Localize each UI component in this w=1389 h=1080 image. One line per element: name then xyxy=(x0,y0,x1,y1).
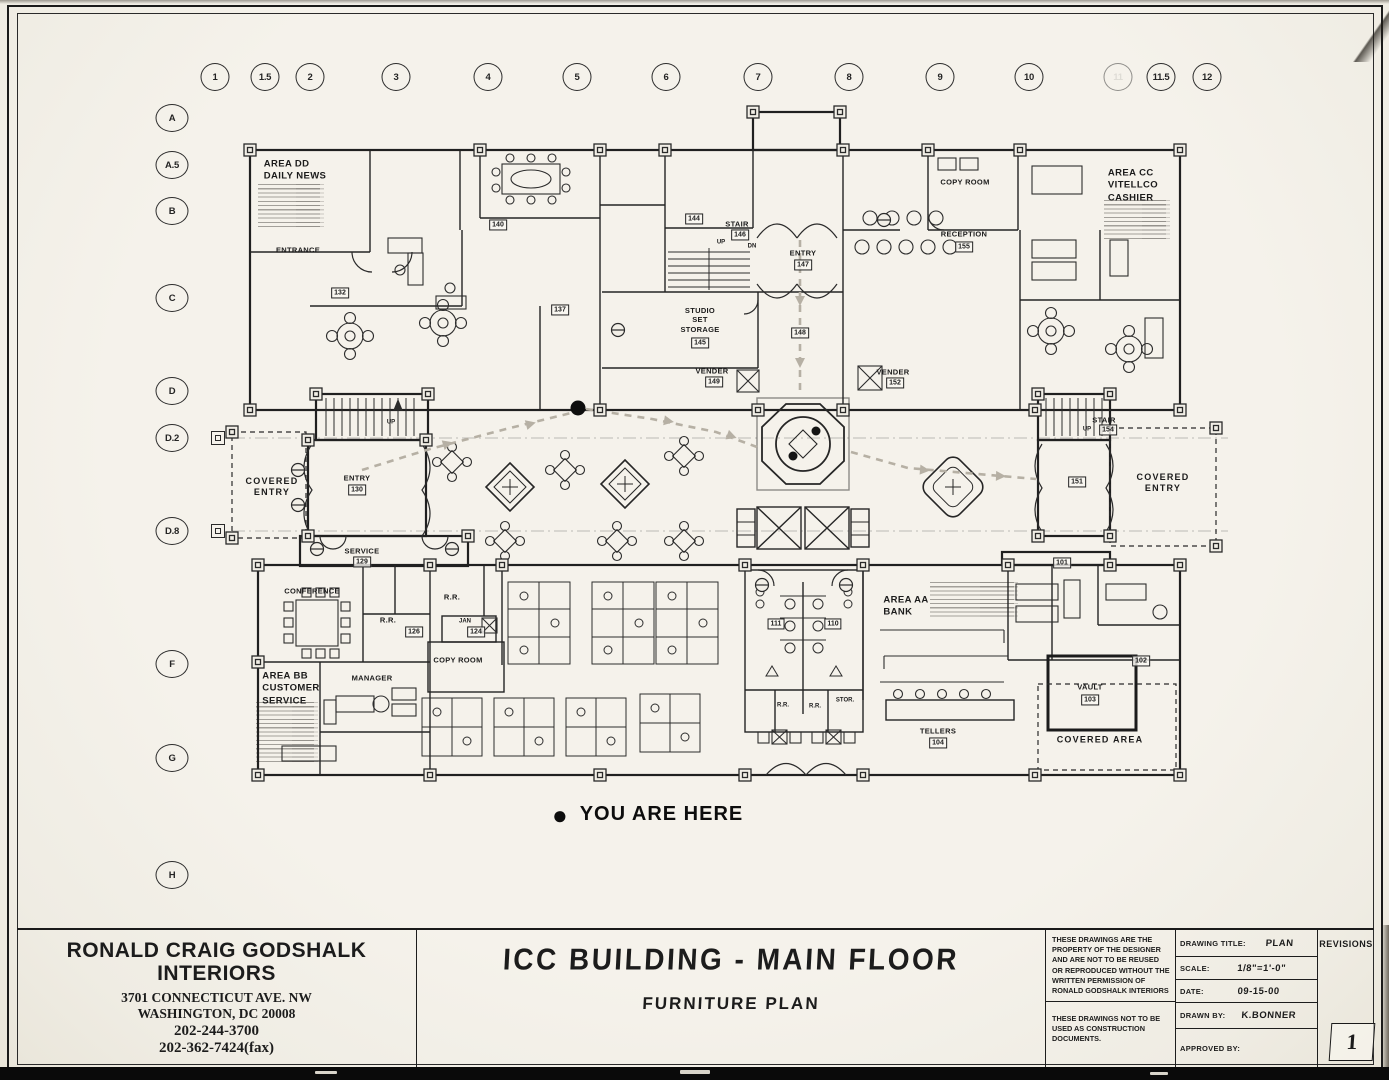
you-are-here-dot: ● xyxy=(552,804,568,826)
plan-label: AREA CC VITELLCO CASHIER xyxy=(1108,167,1158,204)
plan-label: JAN xyxy=(459,618,471,626)
plan-label: 129 xyxy=(353,556,371,567)
sheet-number-box: 1 xyxy=(1329,1023,1376,1061)
drawing-title-value: PLAN xyxy=(1245,938,1313,949)
plan-label: 111 xyxy=(768,618,785,629)
plan-label: 146 xyxy=(731,229,749,240)
plan-label: 155 xyxy=(955,241,973,252)
plan-label: 137 xyxy=(551,304,569,315)
scan-bar xyxy=(0,1067,1389,1080)
project-title-block: ICC BUILDING - MAIN FLOOR FURNITURE PLAN xyxy=(417,930,1046,1067)
scale-label: SCALE: xyxy=(1180,964,1210,973)
plan-label: 126 xyxy=(405,626,423,637)
ownership-note: These drawings are the property of the d… xyxy=(1046,930,1176,1002)
plan-label: VENDER xyxy=(695,366,728,375)
scan-smudge-corner xyxy=(1353,0,1389,62)
firm-name-line2: INTERIORS xyxy=(17,962,416,985)
project-title: ICC BUILDING - MAIN FLOOR xyxy=(416,943,1046,978)
plan-label: COVERED ENTRY xyxy=(1137,472,1190,495)
plan-label: RECEPTION xyxy=(941,229,987,238)
plan-label: VENDER xyxy=(876,367,909,376)
approved-by-label: APPROVED BY: xyxy=(1180,1044,1240,1053)
you-are-here-text: YOU ARE HERE xyxy=(580,803,744,826)
scan-edge-top xyxy=(0,0,1389,4)
firm-address: 3701 CONNECTICUT AVE. NW WASHINGTON, DC … xyxy=(17,990,416,1021)
plan-label: AREA BB CUSTOMER SERVICE xyxy=(262,670,319,707)
drawn-by-value: K.BONNER xyxy=(1225,1010,1313,1021)
firm-fax-number: 202-362-7424(fax) xyxy=(17,1040,416,1057)
plan-label: 102 xyxy=(1132,655,1150,666)
plan-label: 151 xyxy=(1068,476,1086,487)
drawing-title-field: DRAWING TITLE: PLAN xyxy=(1176,930,1318,957)
drawn-by-label: DRAWN BY: xyxy=(1180,1011,1225,1020)
date-field: DATE: 09-15-00 xyxy=(1176,980,1318,1003)
plan-label: 149 xyxy=(705,376,723,387)
plan-label: STUDIO SET STORAGE xyxy=(680,306,719,334)
plan-label: ENTRY xyxy=(790,248,817,257)
plan-label: 145 xyxy=(691,337,709,348)
plan-label: 132 xyxy=(331,287,349,298)
approved-by-field: APPROVED BY: xyxy=(1176,1029,1318,1067)
plan-label: R.R. xyxy=(380,615,396,624)
plan-label: AREA DD DAILY NEWS xyxy=(264,159,327,184)
plan-label: 103 xyxy=(1081,694,1099,705)
firm-phone-number: 202-244-3700 xyxy=(17,1023,416,1040)
plan-label: 147 xyxy=(794,259,812,270)
plan-label: COVERED ENTRY xyxy=(246,476,299,499)
firm-address-line2: WASHINGTON, DC 20008 xyxy=(17,1006,416,1022)
plan-label: UP xyxy=(717,239,725,247)
drawn-by-field: DRAWN BY: K.BONNER xyxy=(1176,1003,1318,1029)
sheet: 11.523456789101111.512AA.5BCDD.2D.8FGH A… xyxy=(0,0,1389,1080)
date-value: 09-15-00 xyxy=(1203,986,1313,997)
plan-label: COPY ROOM xyxy=(940,177,989,186)
plan-label: ENTRANCE xyxy=(276,245,320,254)
firm-block: RONALD CRAIG GODSHALK INTERIORS 3701 CON… xyxy=(17,930,417,1067)
plan-label: 130 xyxy=(348,484,366,495)
plan-label: 148 xyxy=(791,327,809,338)
plan-label: STAIR xyxy=(725,219,748,228)
plan-label: DN xyxy=(748,243,757,251)
sheet-number: 1 xyxy=(1346,1029,1359,1055)
plan-label: 104 xyxy=(929,737,947,748)
plan-label: 140 xyxy=(489,219,507,230)
firm-name: RONALD CRAIG GODSHALK INTERIORS xyxy=(17,939,416,985)
plan-label: MANAGER xyxy=(352,673,393,682)
scale-value: 1/8"=1'-0" xyxy=(1209,963,1313,974)
plan-label: R.R. xyxy=(444,592,460,601)
plan-label: COVERED AREA xyxy=(1057,734,1144,745)
plan-labels-layer: AREA DD DAILY NEWSAREA CC VITELLCO CASHI… xyxy=(0,0,1389,1080)
plan-label: COPY ROOM xyxy=(433,655,482,664)
plan-label: 154 xyxy=(1099,424,1117,435)
construction-note: These drawings not to be used as constru… xyxy=(1046,1002,1176,1067)
plan-label: 110 xyxy=(824,618,841,629)
plan-label: 144 xyxy=(685,213,703,224)
you-are-here-legend: ● YOU ARE HERE xyxy=(552,803,743,826)
plan-label: AREA AA BANK xyxy=(883,595,928,620)
title-block: RONALD CRAIG GODSHALK INTERIORS 3701 CON… xyxy=(17,928,1374,1067)
plan-label: CONFERENCE xyxy=(284,586,340,595)
firm-name-line1: RONALD CRAIG GODSHALK xyxy=(17,939,416,962)
plan-label: STAIR xyxy=(1092,415,1115,424)
plan-label: SERVICE xyxy=(345,546,380,555)
plan-label: ENTRY xyxy=(344,473,371,482)
drawing-title-label: DRAWING TITLE: xyxy=(1180,939,1246,948)
plan-label: UP xyxy=(1083,426,1091,434)
plan-label: 101 xyxy=(1053,557,1071,568)
scale-field: SCALE: 1/8"=1'-0" xyxy=(1176,957,1318,980)
date-label: DATE: xyxy=(1180,987,1204,996)
plan-label: VAULT xyxy=(1077,682,1102,691)
plan-label: 124 xyxy=(467,626,485,637)
plan-label: R.R. xyxy=(777,702,789,710)
plan-label: TELLERS xyxy=(920,726,956,735)
plan-label: 152 xyxy=(886,377,904,388)
plan-label: R.R. xyxy=(809,703,821,711)
plan-label: STOR. xyxy=(836,697,854,705)
scan-smudge-right xyxy=(1381,925,1389,1067)
firm-phone: 202-244-3700 202-362-7424(fax) xyxy=(17,1023,416,1056)
plan-label: UP xyxy=(387,419,395,427)
sheet-subtitle: FURNITURE PLAN xyxy=(416,994,1045,1014)
firm-address-line1: 3701 CONNECTICUT AVE. NW xyxy=(17,990,416,1006)
